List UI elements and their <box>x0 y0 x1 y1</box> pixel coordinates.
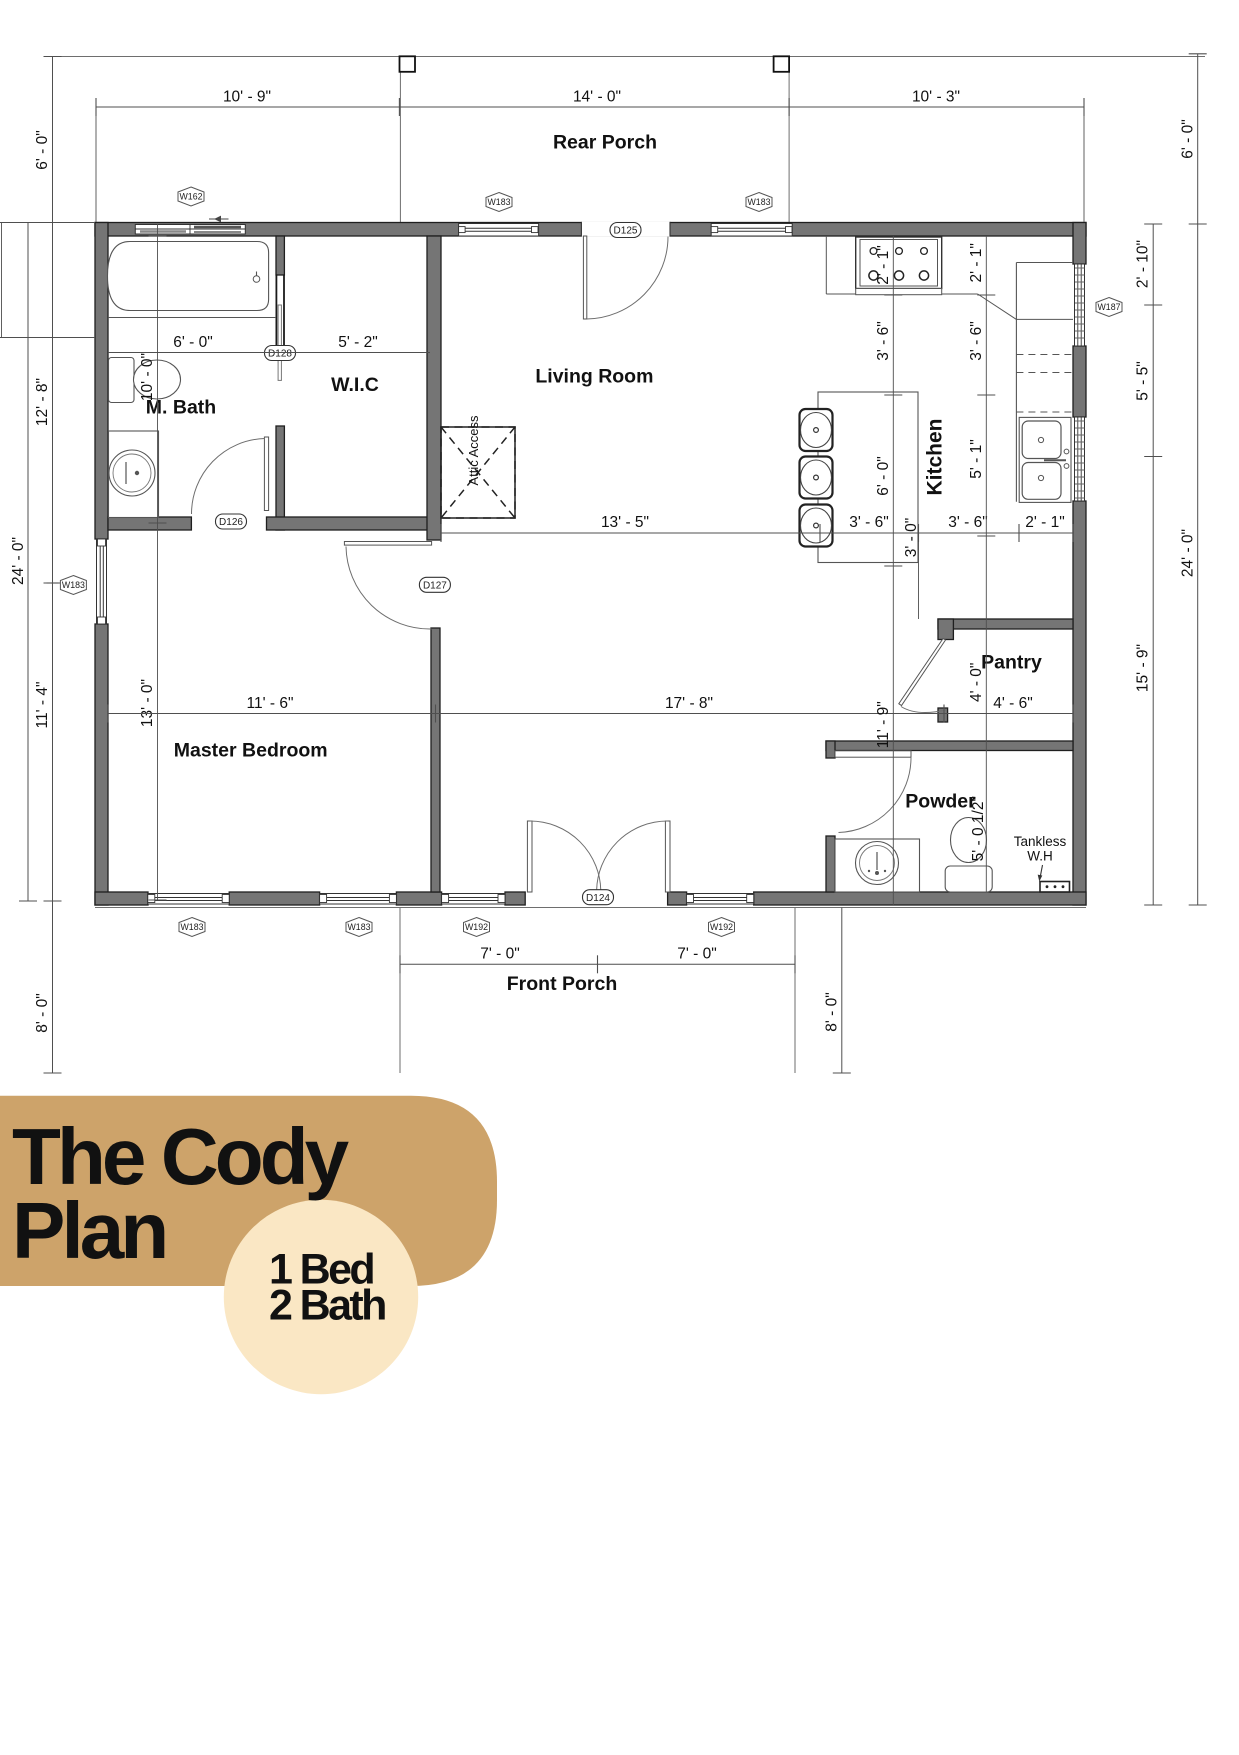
svg-text:W.H: W.H <box>1027 849 1053 864</box>
svg-text:4' - 0": 4' - 0" <box>968 663 985 702</box>
svg-text:D127: D127 <box>423 580 447 591</box>
svg-text:Kitchen: Kitchen <box>923 418 946 495</box>
svg-text:5' - 2": 5' - 2" <box>338 334 377 351</box>
svg-text:W.I.C: W.I.C <box>331 374 379 396</box>
svg-text:Tankless: Tankless <box>1014 834 1067 849</box>
svg-text:Master Bedroom: Master Bedroom <box>174 740 328 762</box>
svg-text:W192: W192 <box>710 922 733 932</box>
svg-text:Attic Access: Attic Access <box>466 415 481 486</box>
svg-text:W183: W183 <box>62 580 85 590</box>
svg-text:W187: W187 <box>1098 302 1121 312</box>
svg-text:4' - 6": 4' - 6" <box>993 695 1032 712</box>
svg-text:2 Bath: 2 Bath <box>269 1282 385 1330</box>
svg-text:10' - 9": 10' - 9" <box>223 89 271 106</box>
svg-text:11' - 9": 11' - 9" <box>875 701 892 748</box>
svg-text:D125: D125 <box>614 226 638 237</box>
svg-text:Front Porch: Front Porch <box>507 973 618 995</box>
svg-text:D124: D124 <box>586 893 610 904</box>
svg-text:W183: W183 <box>181 922 204 932</box>
svg-text:15' - 9": 15' - 9" <box>1135 644 1152 692</box>
svg-text:5' - 5": 5' - 5" <box>1135 361 1152 400</box>
svg-text:Pantry: Pantry <box>981 652 1042 674</box>
svg-text:5' - 0 1/2": 5' - 0 1/2" <box>970 796 987 861</box>
svg-text:7' - 0": 7' - 0" <box>677 946 716 963</box>
svg-text:W162: W162 <box>180 192 203 202</box>
svg-text:2' - 1": 2' - 1" <box>875 245 892 284</box>
svg-text:W183: W183 <box>488 197 511 207</box>
svg-text:6' - 0": 6' - 0" <box>875 456 892 495</box>
svg-text:6' - 0": 6' - 0" <box>34 130 51 169</box>
svg-text:10' - 0": 10' - 0" <box>139 353 156 401</box>
svg-text:5' - 1": 5' - 1" <box>968 439 985 478</box>
svg-text:8' - 0": 8' - 0" <box>824 992 841 1031</box>
svg-text:11' - 6": 11' - 6" <box>247 695 294 712</box>
svg-text:W183: W183 <box>748 197 771 207</box>
svg-text:Living Room: Living Room <box>535 366 653 388</box>
svg-text:W183: W183 <box>348 922 371 932</box>
svg-text:12' - 8": 12' - 8" <box>34 378 51 426</box>
svg-text:3' - 6": 3' - 6" <box>968 321 985 360</box>
svg-text:2' - 1": 2' - 1" <box>1025 514 1064 531</box>
svg-text:3' - 6": 3' - 6" <box>849 514 888 531</box>
svg-text:3' - 6": 3' - 6" <box>948 514 987 531</box>
svg-text:2' - 1": 2' - 1" <box>968 243 985 282</box>
svg-text:24' - 0": 24' - 0" <box>10 537 27 585</box>
svg-text:M. Bath: M. Bath <box>146 397 216 419</box>
svg-text:10' - 3": 10' - 3" <box>912 89 960 106</box>
svg-text:3' - 6": 3' - 6" <box>875 321 892 360</box>
svg-text:W192: W192 <box>465 922 488 932</box>
svg-text:D128: D128 <box>268 349 292 360</box>
svg-text:6' - 0": 6' - 0" <box>173 334 212 351</box>
svg-text:3' - 0": 3' - 0" <box>903 518 920 557</box>
svg-text:2' - 10": 2' - 10" <box>1135 240 1152 288</box>
svg-text:13' - 0": 13' - 0" <box>139 679 156 727</box>
svg-text:17' - 8": 17' - 8" <box>665 695 713 712</box>
svg-text:D126: D126 <box>219 517 243 528</box>
svg-text:11' - 4": 11' - 4" <box>34 682 51 729</box>
svg-text:14' - 0": 14' - 0" <box>573 89 621 106</box>
svg-text:6' - 0": 6' - 0" <box>1180 119 1197 158</box>
svg-text:Powder: Powder <box>905 791 976 813</box>
svg-text:7' - 0": 7' - 0" <box>480 946 519 963</box>
svg-text:8' - 0": 8' - 0" <box>34 993 51 1032</box>
svg-text:Plan: Plan <box>12 1186 165 1275</box>
svg-text:Rear Porch: Rear Porch <box>553 132 657 154</box>
svg-text:13' - 5": 13' - 5" <box>601 514 649 531</box>
svg-text:24' - 0": 24' - 0" <box>1180 529 1197 577</box>
